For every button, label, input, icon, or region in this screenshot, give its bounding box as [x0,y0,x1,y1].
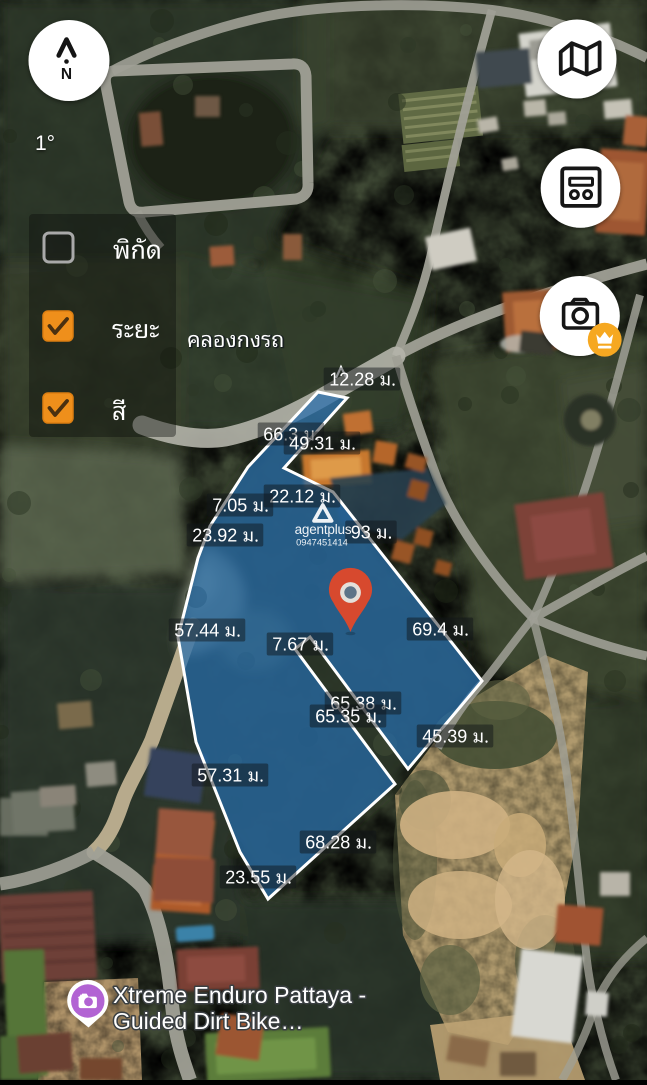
svg-text:23.55: 23.55 [225,868,270,888]
svg-text:22.12: 22.12 [269,487,314,507]
svg-text:45.39: 45.39 [422,727,467,747]
svg-text:12.28: 12.28 [329,370,374,390]
svg-text:agentplus: agentplus [295,522,352,537]
svg-text:69.4: 69.4 [412,620,447,640]
svg-text:7.67: 7.67 [272,635,307,655]
svg-text:65.35: 65.35 [315,707,360,727]
svg-text:93: 93 [351,523,371,543]
svg-text:68.28: 68.28 [305,833,350,853]
svg-text:N: N [61,66,72,83]
svg-text:49.31: 49.31 [289,434,334,454]
svg-text:0947451414: 0947451414 [296,538,348,548]
svg-text:Xtreme Enduro Pattaya -: Xtreme Enduro Pattaya - [113,982,366,1008]
svg-text:57.44: 57.44 [174,621,219,641]
svg-text:7.05: 7.05 [212,496,247,516]
svg-text:57.31: 57.31 [197,766,242,786]
svg-text:1°: 1° [35,132,55,155]
svg-text:23.92: 23.92 [192,526,237,546]
svg-text:Guided Dirt Bike…: Guided Dirt Bike… [113,1008,303,1034]
